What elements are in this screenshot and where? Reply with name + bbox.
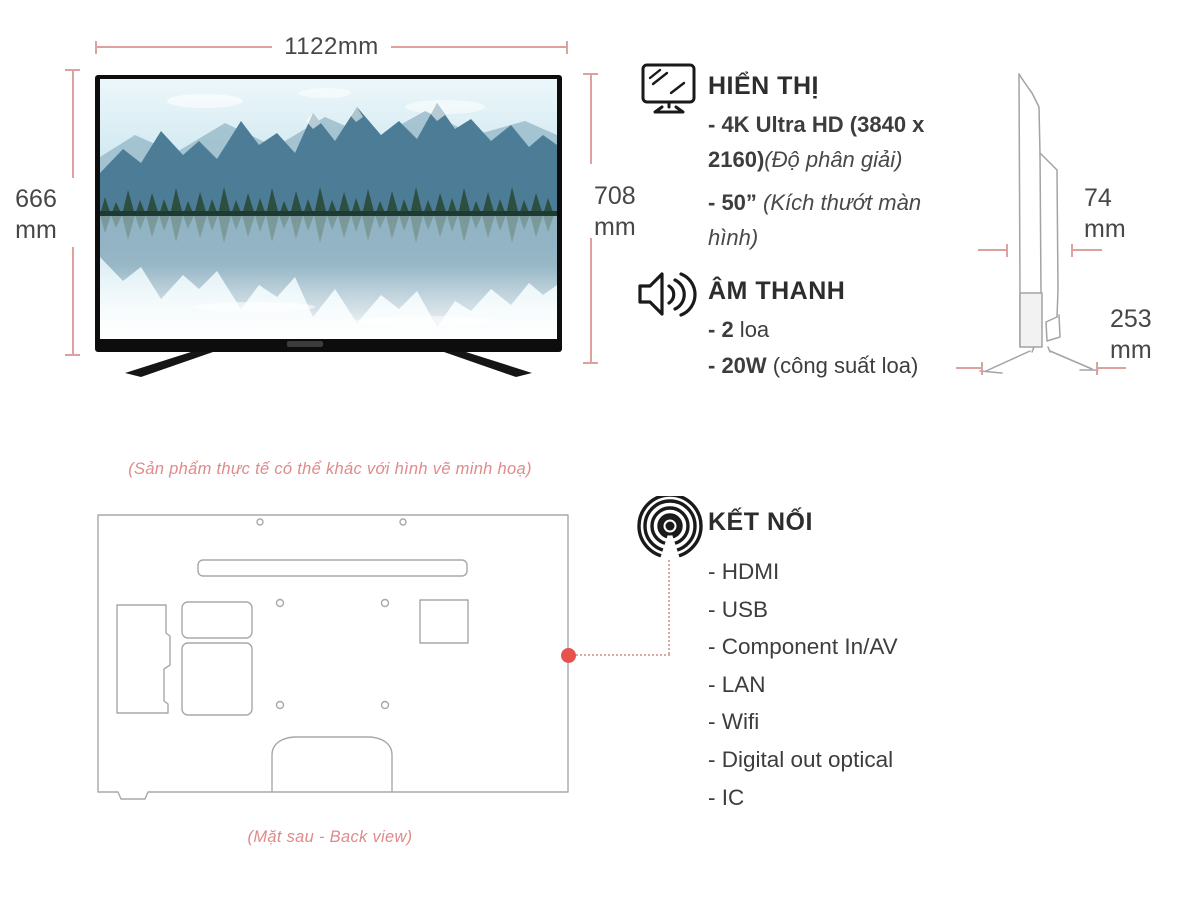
connectivity-list: - HDMI - USB - Component In/AV - LAN - W…: [708, 553, 1008, 816]
dimension-line: [590, 75, 592, 164]
brand-logo-plate: [287, 341, 323, 347]
stand-depth-dimension-label: 253mm: [1110, 304, 1176, 366]
height-dimension-right-label: 708mm: [594, 181, 656, 243]
display-section-title: HIỂN THỊ: [708, 72, 819, 101]
audio-section-title: ÂM THANH: [708, 277, 845, 306]
connectivity-item-optical: - Digital out optical: [708, 741, 1008, 779]
tv-right-leg: [444, 352, 532, 377]
dimension-line: [97, 46, 272, 48]
connectivity-item-usb: - USB: [708, 591, 1008, 629]
connectivity-section-title: KẾT NỐI: [708, 508, 813, 537]
dimension-tick: [566, 41, 568, 54]
dimension-line: [391, 46, 566, 48]
connectivity-item-wifi: - Wifi: [708, 703, 1008, 741]
spec-sheet: 1122mm 666mm 708mm: [0, 0, 1200, 900]
monitor-icon: [640, 62, 698, 118]
display-spec-list: - 4K Ultra HD (3840 x 2160)(Độ phân giải…: [708, 107, 976, 255]
connectivity-item-component: - Component In/AV: [708, 628, 1008, 666]
depth-dimension-label: 74mm: [1084, 183, 1144, 245]
disclaimer-note: (Sản phẩm thực tế có thể khác với hình v…: [100, 460, 560, 479]
signal-icon: [637, 496, 703, 560]
dimension-line: [72, 71, 74, 178]
connector-dot: [561, 648, 576, 663]
tv-left-leg: [125, 352, 213, 377]
connector-leader-horizontal: [576, 654, 670, 656]
width-dimension-label: 1122mm: [284, 33, 379, 61]
speaker-icon: [636, 266, 700, 324]
dimension-line: [72, 247, 74, 355]
connectivity-item-lan: - LAN: [708, 666, 1008, 704]
width-dimension: 1122mm: [95, 40, 568, 54]
display-spec-size: - 50” (Kích thướt màn hình): [708, 185, 976, 255]
height-dimension-left-label: 666mm: [6, 184, 66, 246]
connectivity-item-hdmi: - HDMI: [708, 553, 1008, 591]
connectivity-item-ic: - IC: [708, 779, 1008, 817]
display-spec-resolution: - 4K Ultra HD (3840 x 2160)(Độ phân giải…: [708, 107, 976, 177]
dimension-tick: [583, 362, 598, 364]
dimension-line: [590, 238, 592, 363]
dimension-tick: [65, 354, 80, 356]
tv-front-view: [95, 75, 562, 379]
tv-screen-image: [100, 79, 557, 339]
back-view-caption: (Mặt sau - Back view): [130, 828, 530, 847]
